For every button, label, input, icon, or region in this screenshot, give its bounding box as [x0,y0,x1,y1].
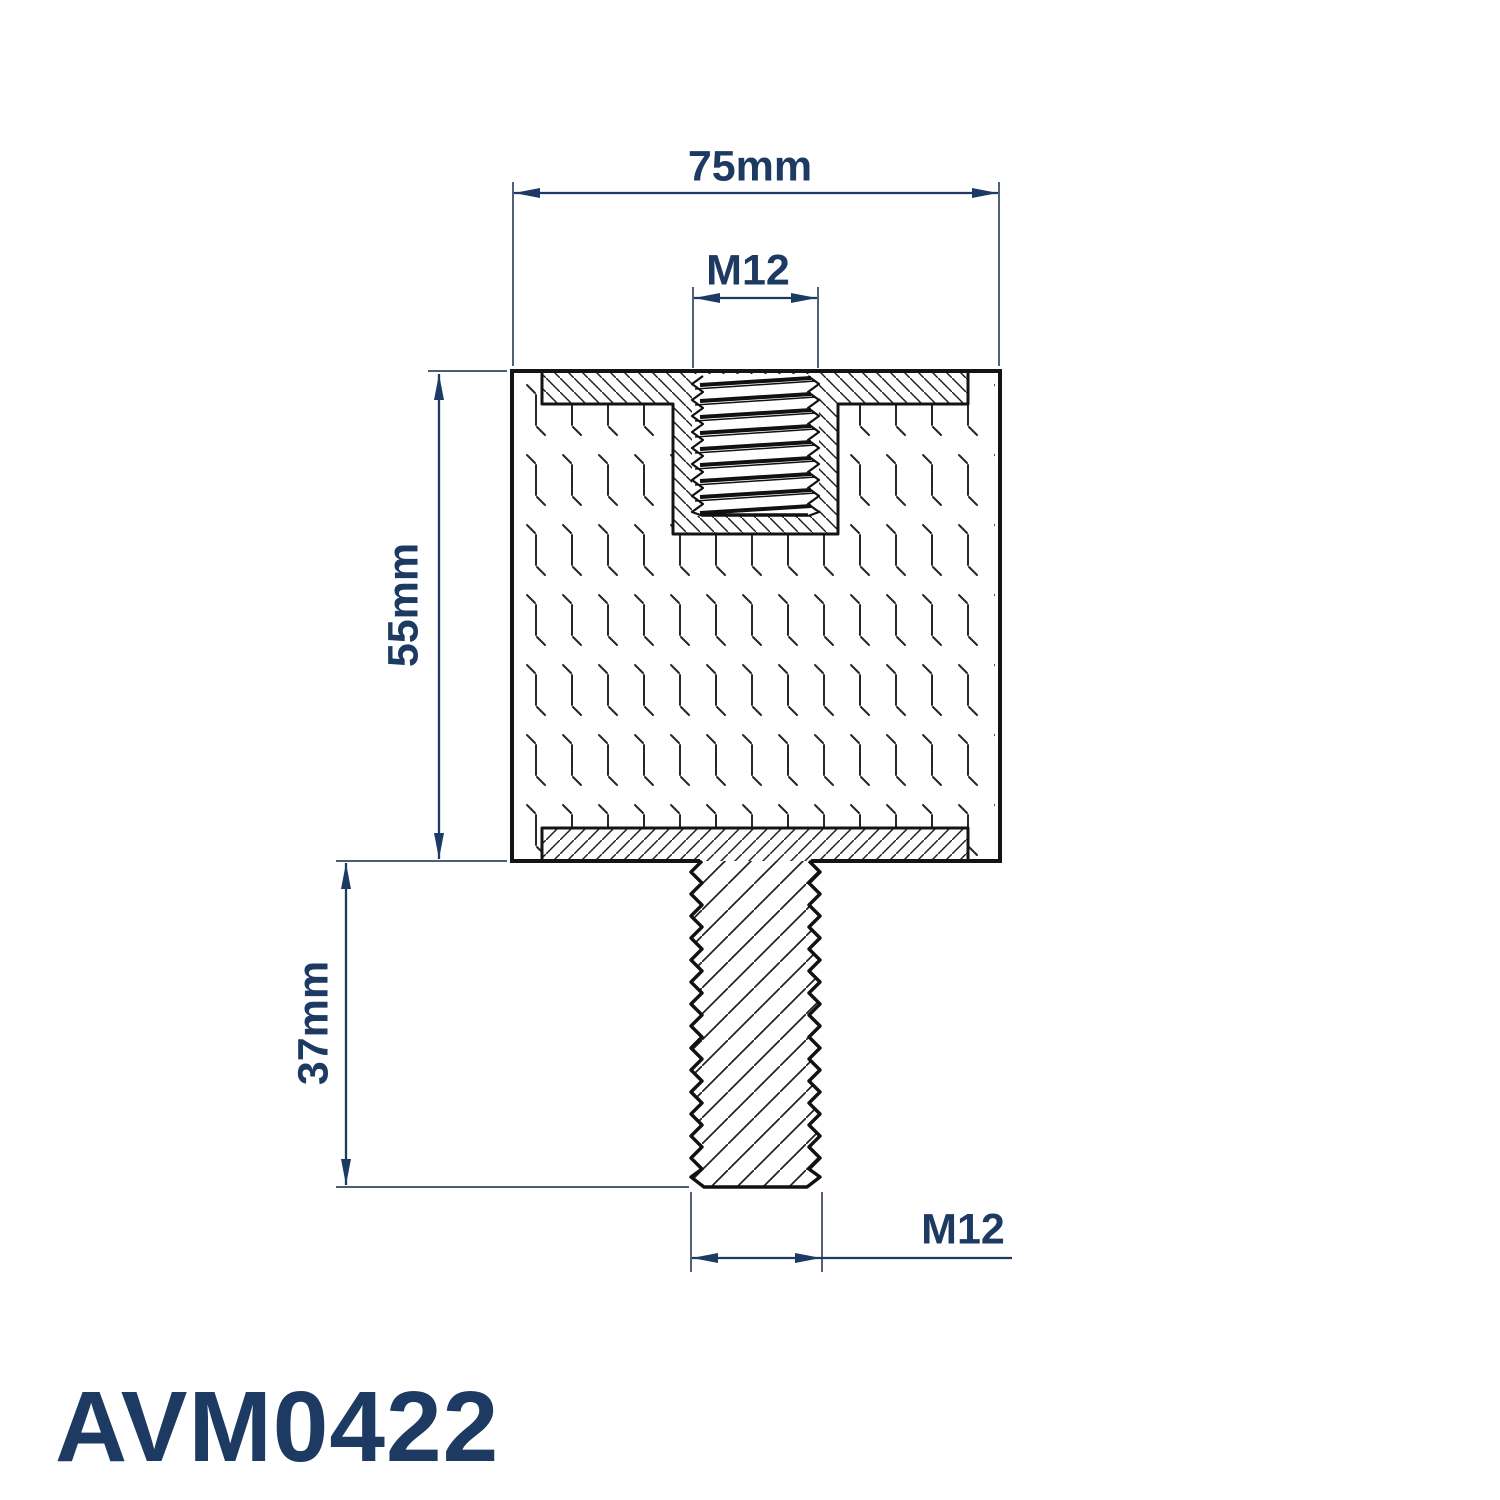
arrowhead-left [692,1253,718,1263]
dim-label-body-width: 75mm [688,143,812,192]
arrowhead-top [434,374,444,400]
arrowhead-right [972,188,998,198]
arrowhead-bottom [341,1159,351,1185]
bottom-plate-hatch [542,828,968,861]
arrowhead-top [341,863,351,889]
dim-label-top-thread: M12 [706,247,790,296]
arrowhead-right [791,293,817,303]
dim-top-thread [693,287,818,368]
dim-label-stud-length: 37mm [290,961,339,1085]
top-thread-hole [692,374,819,516]
bottom-plate [542,828,968,861]
stud-hatch [691,861,820,1187]
drawing-linework [0,0,1500,1500]
bottom-stud [691,861,820,1187]
arrowhead-right [795,1253,821,1263]
dim-label-bottom-thread: M12 [921,1206,1005,1255]
arrowhead-left [514,188,540,198]
part-number-title: AVM0422 [55,1370,499,1485]
dim-stud-length [336,863,689,1187]
technical-drawing-page: 75mm M12 55mm 37mm M12 AVM0422 [0,0,1500,1500]
arrowhead-bottom [434,833,444,859]
dim-label-body-height: 55mm [380,543,429,667]
thread-turns [695,378,816,515]
